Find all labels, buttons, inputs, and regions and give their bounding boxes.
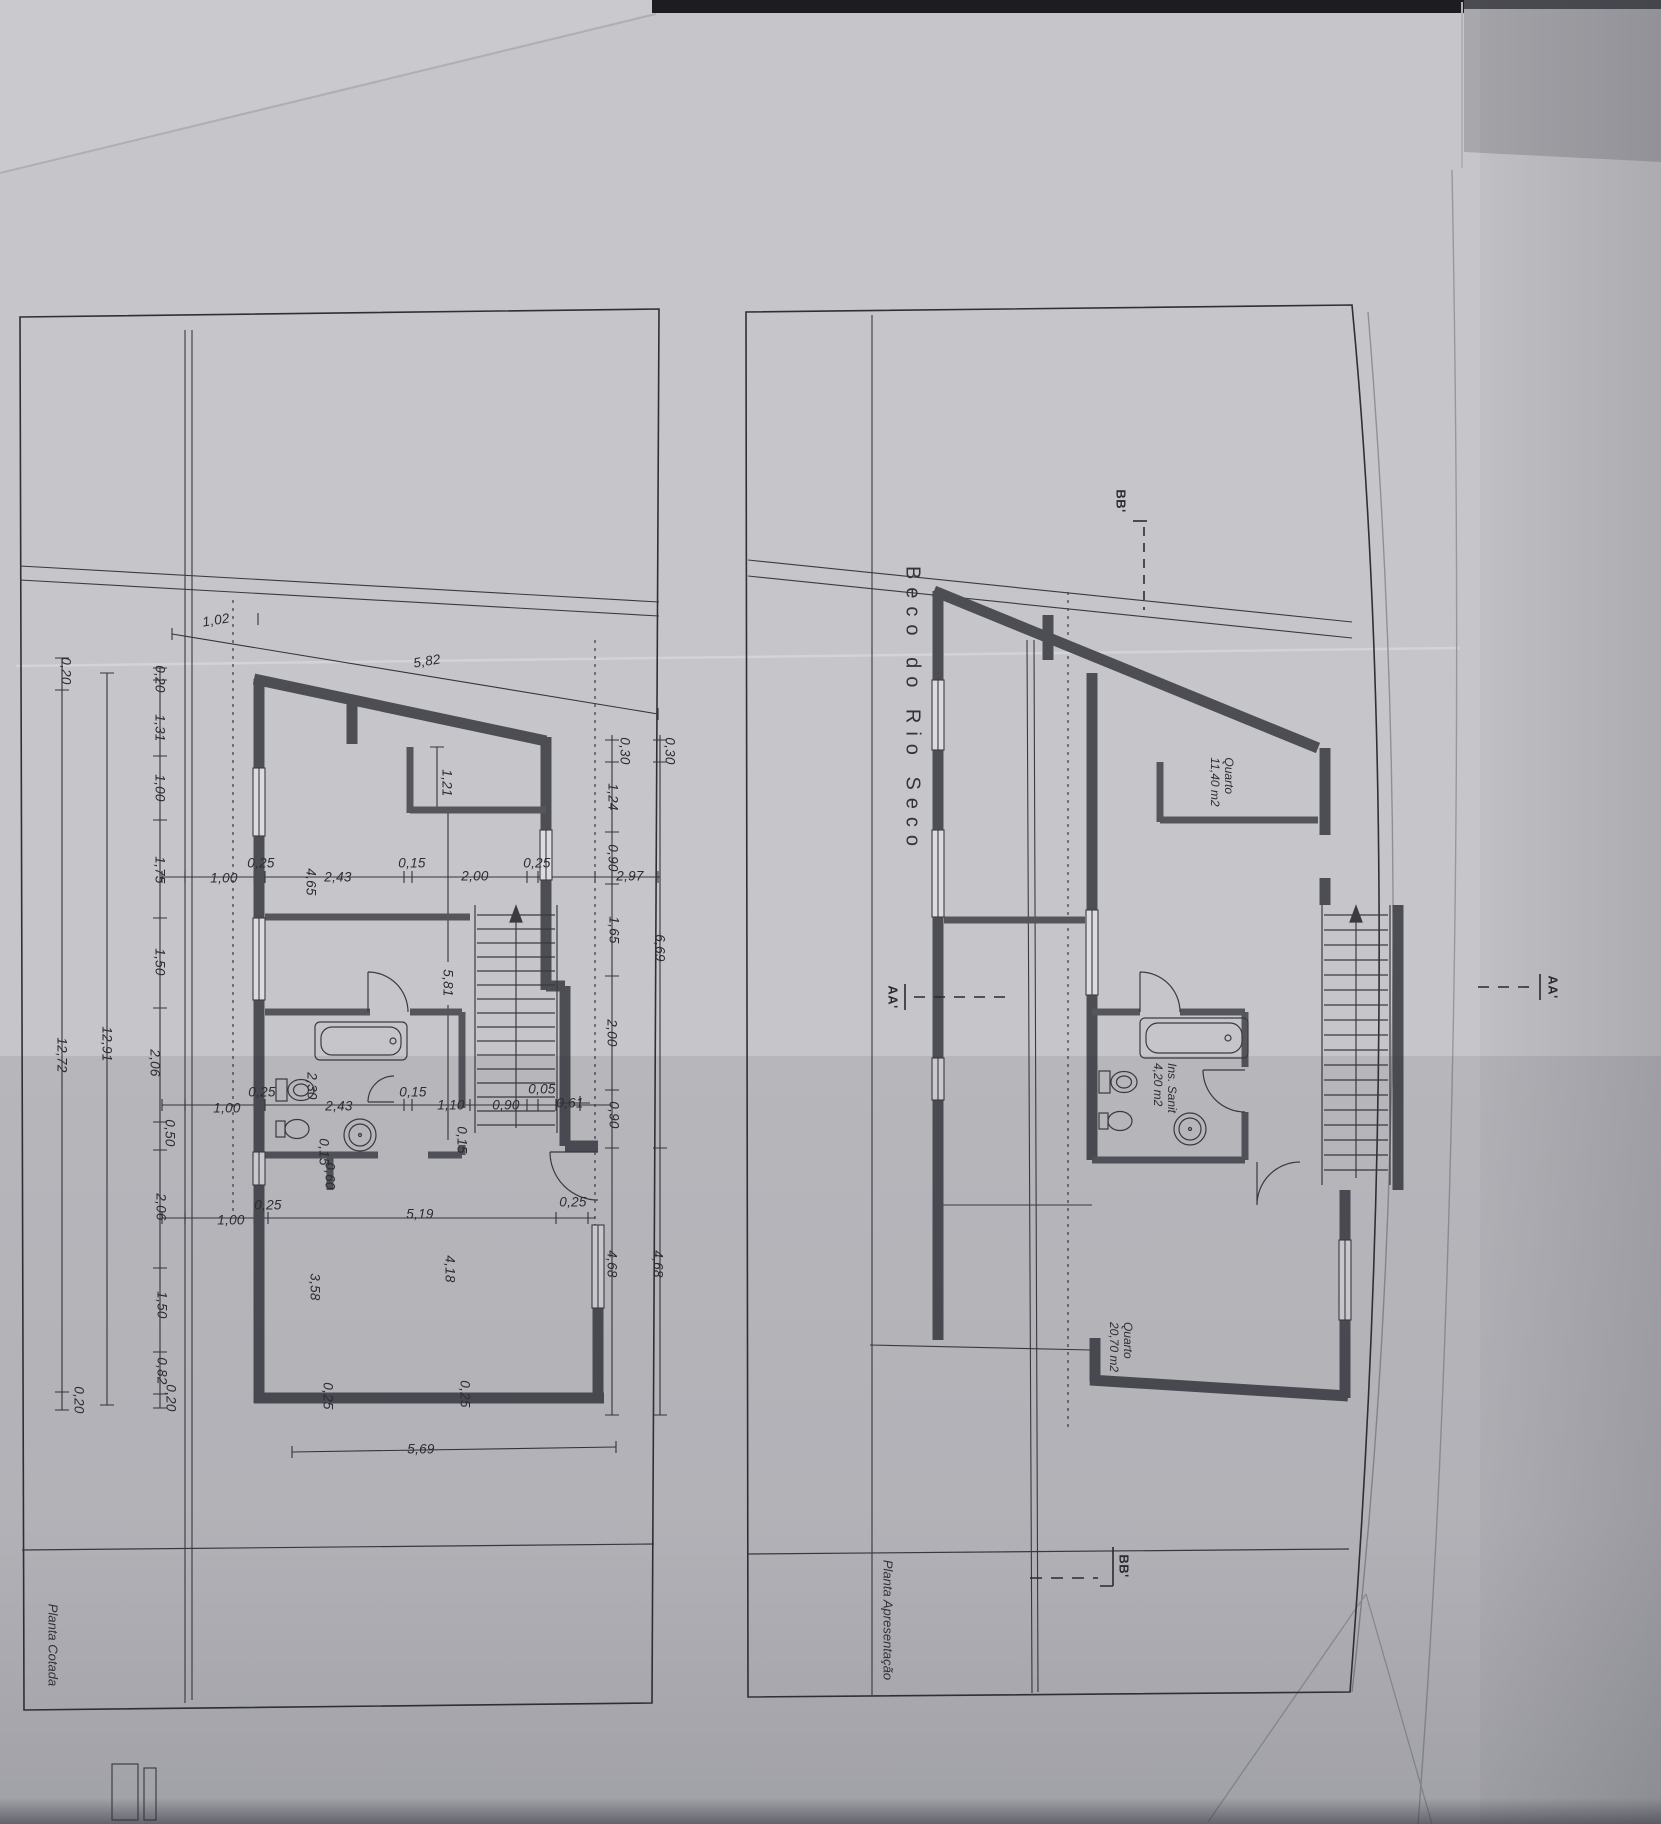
dim-line-top (172, 634, 658, 714)
bathtub (1140, 1018, 1248, 1058)
photo-shadow-bottom (0, 1798, 1661, 1824)
site-edge-lines (20, 566, 659, 616)
dim-line (430, 747, 444, 810)
bathtub-drain (1225, 1035, 1231, 1041)
door-arc (1140, 972, 1180, 1012)
bathtub-drain (390, 1038, 396, 1044)
bathtub-inner (1146, 1023, 1242, 1053)
scanned-floor-plan-sheet: 0,2012,720,2012,910,201,311,001,751,502,… (0, 0, 1661, 1824)
stair-up-arrow (1350, 906, 1362, 922)
stair-up-arrow (510, 906, 522, 922)
bathtub-inner (321, 1027, 401, 1055)
photo-top-edge (652, 0, 1464, 13)
dim-ticks (172, 613, 658, 720)
photo-shadow-lower (0, 1056, 1661, 1824)
door-arc (368, 972, 408, 1012)
paper-fold-top-left (0, 0, 652, 172)
photo-shadow-right (1480, 0, 1661, 1824)
